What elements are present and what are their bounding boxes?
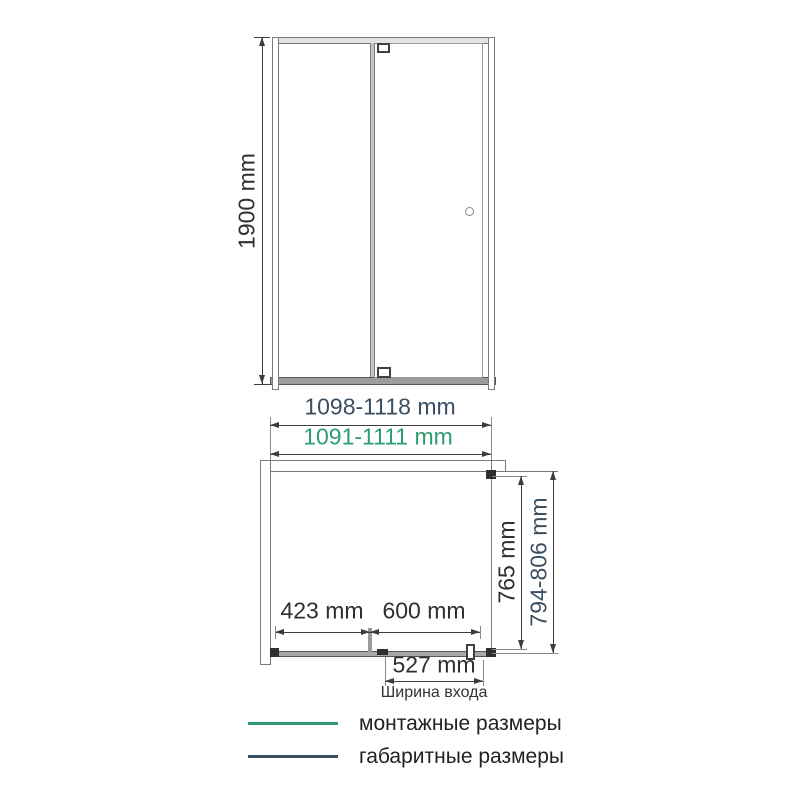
fixed-panel-label: 423 mm [280,598,363,625]
arrow-right-icon [471,629,480,635]
door-width-dim-line [370,632,480,633]
arrow-left-icon [275,629,284,635]
inner-depth-dim-line [521,476,522,649]
entrance-width-label: 527 mm [392,652,475,679]
plan-left-wall-profile [260,460,271,665]
legend-mounting-line [248,722,338,725]
arrow-up-icon [259,37,265,46]
left-wall-profile [272,37,279,390]
arrow-left-icon [270,451,279,457]
overall-depth-label: 794-806 mm [526,497,553,626]
inner-depth-ext-bottom [492,649,527,650]
mounting-width-label: 1091-1111 mm [303,424,453,451]
plan-top-inner-line [270,471,558,472]
height-dim-tick-bottom [254,384,270,385]
plan-right-edge [491,460,492,657]
inner-depth-label: 765 mm [494,520,521,603]
frame-bottom-bar [270,377,496,385]
door-width-ext-right [480,626,481,639]
arrow-up-icon [518,476,524,485]
plan-profile-section-top-right [486,470,496,479]
arrow-down-icon [550,644,556,653]
legend-mounting-label: монтажные размеры [359,712,562,736]
arrow-left-icon [270,422,279,428]
plan-door-edge-mark [377,649,388,655]
overall-depth-ext-bottom [492,653,558,654]
arrow-right-icon [482,451,491,457]
door-knob-icon [465,207,474,216]
fixed-panel-ext-left [275,626,276,639]
arrow-up-icon [550,471,556,480]
arrow-down-icon [259,375,265,384]
entrance-caption: Ширина входа [381,684,488,702]
plan-profile-section-bottom-left [270,648,279,657]
arrow-right-icon [482,422,491,428]
legend-overall-line [248,755,338,758]
entrance-ext-right [483,660,484,686]
mounting-width-dim-line [270,454,491,455]
overall-depth-dim-line [553,471,554,653]
overall-width-label: 1098-1118 mm [304,394,455,421]
pivot-bracket-bottom [377,367,391,378]
fixed-panel-dim-line [275,632,370,633]
panel-divider [370,43,375,377]
technical-drawing: 1900 mm 1098-1118 mm 1091-1111 mm [0,0,800,800]
arrow-right-icon [361,629,370,635]
arrow-left-icon [370,629,379,635]
height-dim-line [262,38,263,384]
plan-top-outer-line [260,460,505,461]
right-wall-profile [488,37,495,390]
legend-overall-label: габаритные размеры [359,745,564,769]
height-dim-label: 1900 mm [234,153,261,249]
door-width-label: 600 mm [382,598,465,625]
arrow-down-icon [518,640,524,649]
pivot-bracket-top [377,43,390,53]
entrance-dim-line [385,681,483,682]
